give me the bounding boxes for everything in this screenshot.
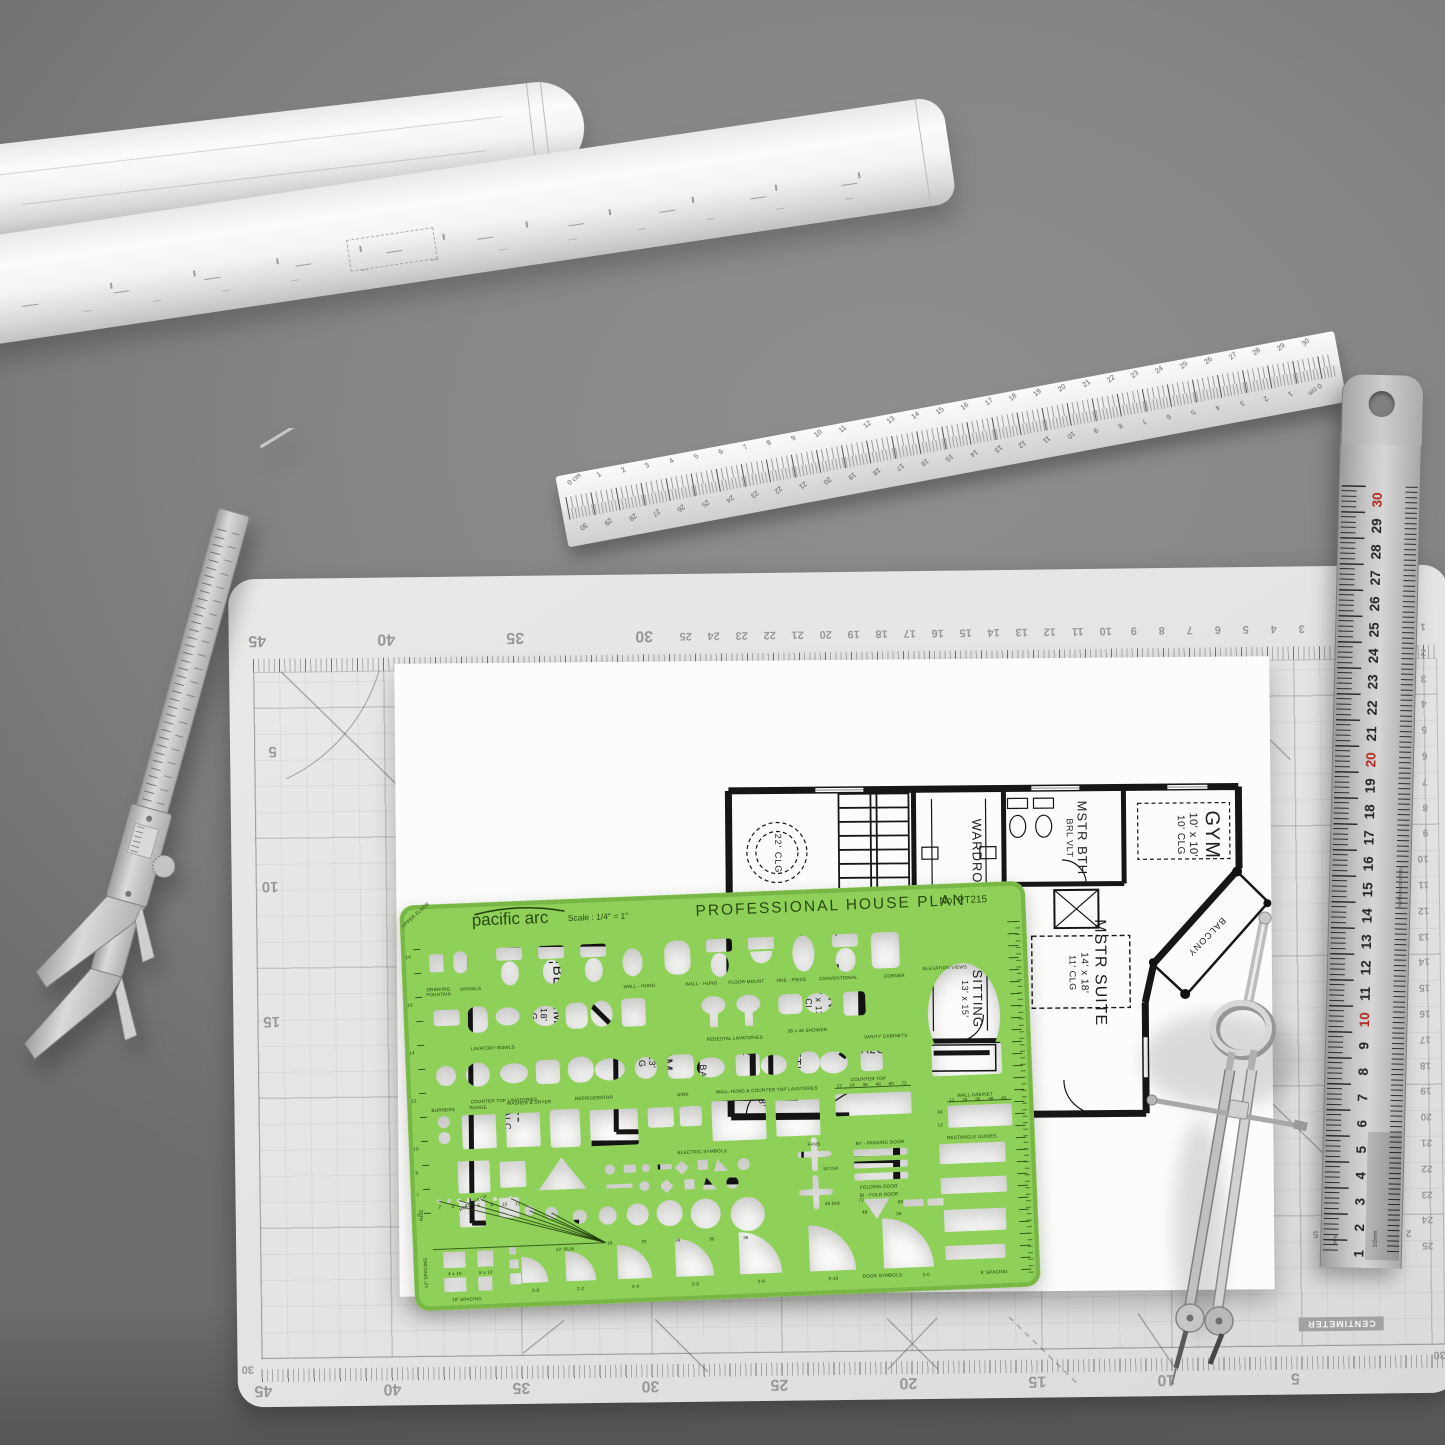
- tpl-edge-num: 14: [405, 955, 411, 960]
- door-size: 2-10: [828, 1276, 838, 1282]
- tpl-label: 8 x 12: [479, 1270, 493, 1276]
- scale-ruler-ticks: [568, 365, 1337, 519]
- scale-ruler-ticks: [565, 354, 1334, 509]
- tpl-label: FANS: [808, 1141, 821, 1147]
- tpl-edge-num: 6: [417, 1213, 420, 1218]
- tpl-label: SINK: [677, 1092, 689, 1098]
- tpl-label: 52 DIA: [823, 1166, 838, 1172]
- template-body: [399, 881, 1041, 1312]
- tpl-edge-num: 7: [416, 1193, 419, 1198]
- caliper-depth-rod: [261, 428, 301, 456]
- tpl-size: 72: [858, 1198, 864, 1203]
- door-size: 2-8: [758, 1279, 765, 1285]
- caliper-fixed-jaw: [21, 957, 121, 1076]
- steel-ruler-mm-label: mm: [1333, 1235, 1339, 1244]
- tpl-label: DRINKING FOUNTAIN: [421, 986, 455, 998]
- tpl-edge-num: 10: [413, 1146, 419, 1151]
- hanging-hole: [1368, 391, 1395, 418]
- tpl-label: 48 DIA: [825, 1201, 840, 1207]
- tpl-edge-num: 12: [411, 1099, 417, 1104]
- tpl-label: URINALS: [460, 986, 482, 992]
- tpl-edge-num: 16: [407, 1003, 413, 1008]
- door-size: 3-0: [923, 1272, 930, 1278]
- tpl-size: 34: [937, 1109, 943, 1114]
- door-size: 2-6: [692, 1281, 699, 1287]
- tpl-label: RANGE: [470, 1105, 488, 1111]
- vernier-caliper: [20, 428, 340, 1148]
- tpl-label: CORNER: [884, 973, 905, 979]
- tpl-label: 4 x 16: [448, 1271, 462, 1277]
- triangular-scale-ruler: 0 cm123456789101112131415161718192021222…: [555, 331, 1347, 547]
- door-size: 2-4: [632, 1284, 639, 1290]
- label-22clg: 22' CLG: [772, 834, 783, 874]
- steel-ruler-tab: [1341, 373, 1425, 446]
- tpl-size: 36: [896, 1211, 902, 1216]
- tpl-size: 48: [862, 1210, 868, 1215]
- tube-seam: [915, 99, 932, 206]
- room-label-gym: GYM 10' x 10' 10' CLG: [1174, 810, 1223, 859]
- tpl-edge-num: 8: [415, 1171, 418, 1176]
- template-brand: pacific arc: [471, 908, 548, 931]
- tpl-label: 12' RUN: [556, 1246, 575, 1252]
- blueprint-doodle-line: [84, 196, 866, 312]
- steel-ruler-brand-note: HARDENED STEEL: [1397, 867, 1403, 908]
- desk-scene: 0 cm123456789101112131415161718192021222…: [0, 0, 1445, 1445]
- tpl-size: 12: [937, 1122, 943, 1127]
- room-label-mstr-bth: MSTR BTH BRL VLT: [1064, 801, 1091, 876]
- tpl-label: 8' SPACING: [981, 1269, 1008, 1275]
- steel-ruler-halfmm-label: 1/2mm: [1372, 1231, 1378, 1248]
- door-size: 2-2: [577, 1286, 584, 1292]
- drafting-template: pacific arc Scale : 1/4" = 1" PROFESSION…: [399, 881, 1041, 1312]
- tube-fold: [0, 116, 503, 177]
- tpl-size: 60: [898, 1199, 904, 1204]
- tpl-label: BURNERS: [431, 1107, 455, 1113]
- room-label-mstr-suite: MSTR SUITE 14' x 18' 11' CLG: [1067, 919, 1109, 1026]
- template-model-number: No. PT215: [939, 894, 987, 907]
- tpl-edge-num: 14: [409, 1051, 415, 1056]
- door-size: 2-0: [532, 1288, 539, 1294]
